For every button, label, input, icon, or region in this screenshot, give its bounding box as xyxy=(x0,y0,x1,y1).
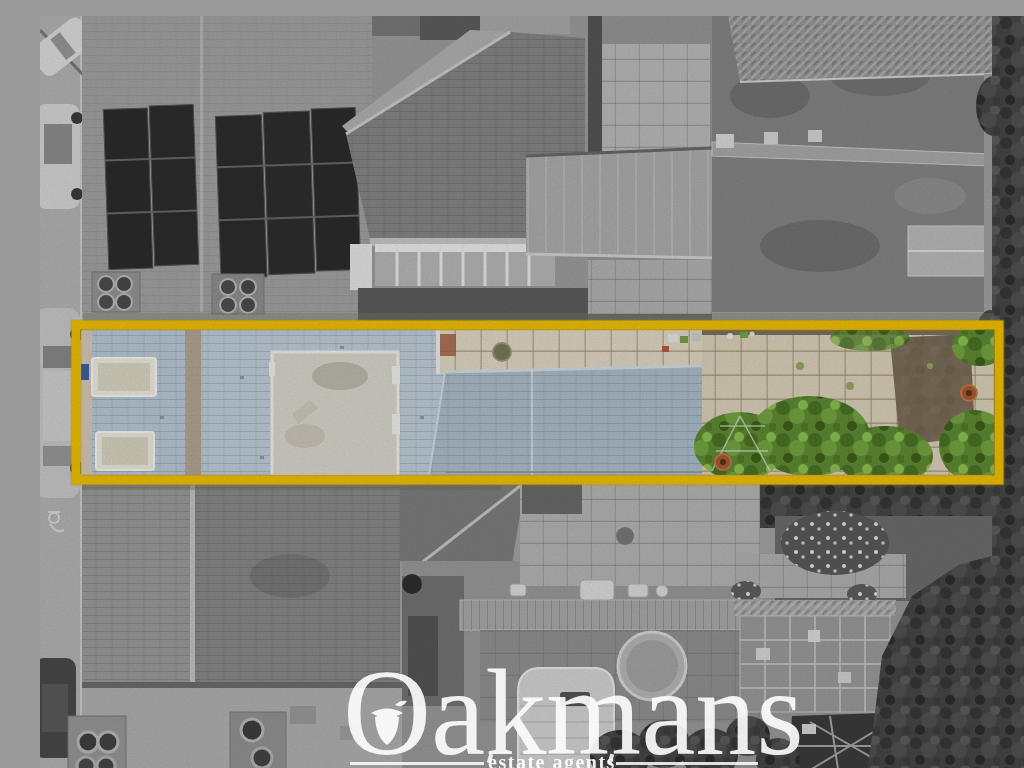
acorn-icon xyxy=(367,697,407,749)
property-aerial-photo: Oakmans estate agents xyxy=(40,16,1024,768)
watermark-rule-right xyxy=(616,762,758,765)
watermark-tagline: estate agents xyxy=(452,751,652,768)
